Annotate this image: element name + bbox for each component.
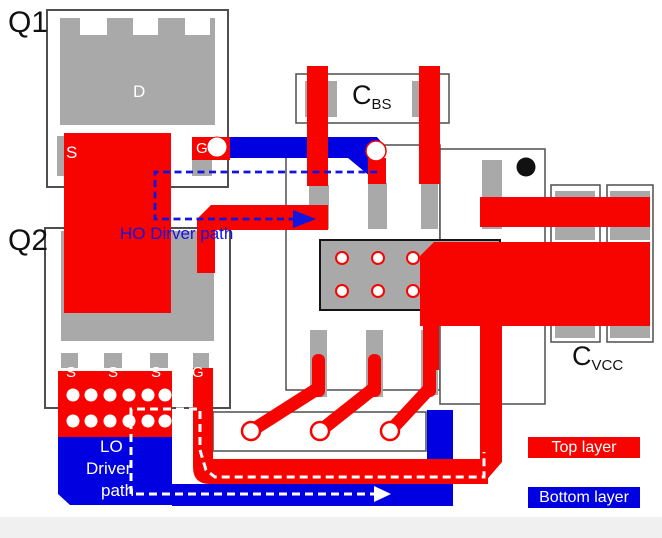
pin1-dot — [517, 158, 536, 177]
via — [336, 285, 348, 297]
via — [372, 285, 384, 297]
via — [311, 422, 329, 440]
q1-gate-label: G — [196, 140, 208, 157]
q2-source-label: S — [108, 364, 118, 381]
vcc-pour — [420, 242, 650, 326]
lo-path-label-line1: LO — [100, 437, 123, 457]
via — [407, 252, 419, 264]
cvcc-label-sub: VCC — [592, 357, 624, 374]
q1-source-pad — [57, 136, 64, 176]
q2-label: Q2 — [8, 224, 48, 258]
cbs-label-main: C — [352, 80, 372, 110]
via — [207, 137, 227, 157]
via — [372, 252, 384, 264]
cbs-label: CBS — [352, 80, 392, 113]
q2-source-label: S — [66, 364, 76, 381]
cvcc-label: CVCC — [572, 341, 623, 374]
legend-top-layer: Top layer — [528, 437, 640, 458]
via — [407, 285, 419, 297]
q1-source-label: S — [66, 143, 77, 163]
q1-drain-pad — [60, 35, 215, 125]
q1-drain-tab — [60, 18, 80, 36]
ic-pad — [421, 183, 438, 229]
pcb-layout-figure: Q1 Q2 D S G S S S G CBS CVCC HO Dirver p… — [0, 0, 662, 538]
lo-path-label-line3: path — [101, 481, 134, 501]
ic-pad — [368, 183, 387, 229]
q1-drain-tab — [158, 18, 185, 36]
via — [366, 141, 386, 161]
vcc-bar — [480, 197, 650, 227]
via — [336, 252, 348, 264]
lo-path-label-line2: Driver — [86, 459, 131, 479]
q1-label: Q1 — [8, 6, 48, 40]
q1-source-copper — [64, 133, 171, 313]
q1-drain-tab — [210, 18, 215, 36]
q1-gate-pad — [192, 160, 212, 176]
q1-drain-tab — [107, 18, 133, 36]
bottom-strip — [0, 517, 662, 538]
legend-bottom-layer: Bottom layer — [528, 487, 640, 508]
cbs-leg — [307, 66, 328, 186]
q2-source-label: S — [151, 364, 161, 381]
via — [242, 422, 260, 440]
cbs-label-sub: BS — [372, 96, 392, 113]
cvcc-label-main: C — [572, 341, 592, 371]
via — [381, 422, 399, 440]
cbs-leg — [419, 66, 440, 184]
ho-path-label: HO Dirver path — [120, 224, 233, 244]
q2-gate-label: G — [192, 364, 204, 381]
q1-drain-label: D — [133, 82, 145, 102]
